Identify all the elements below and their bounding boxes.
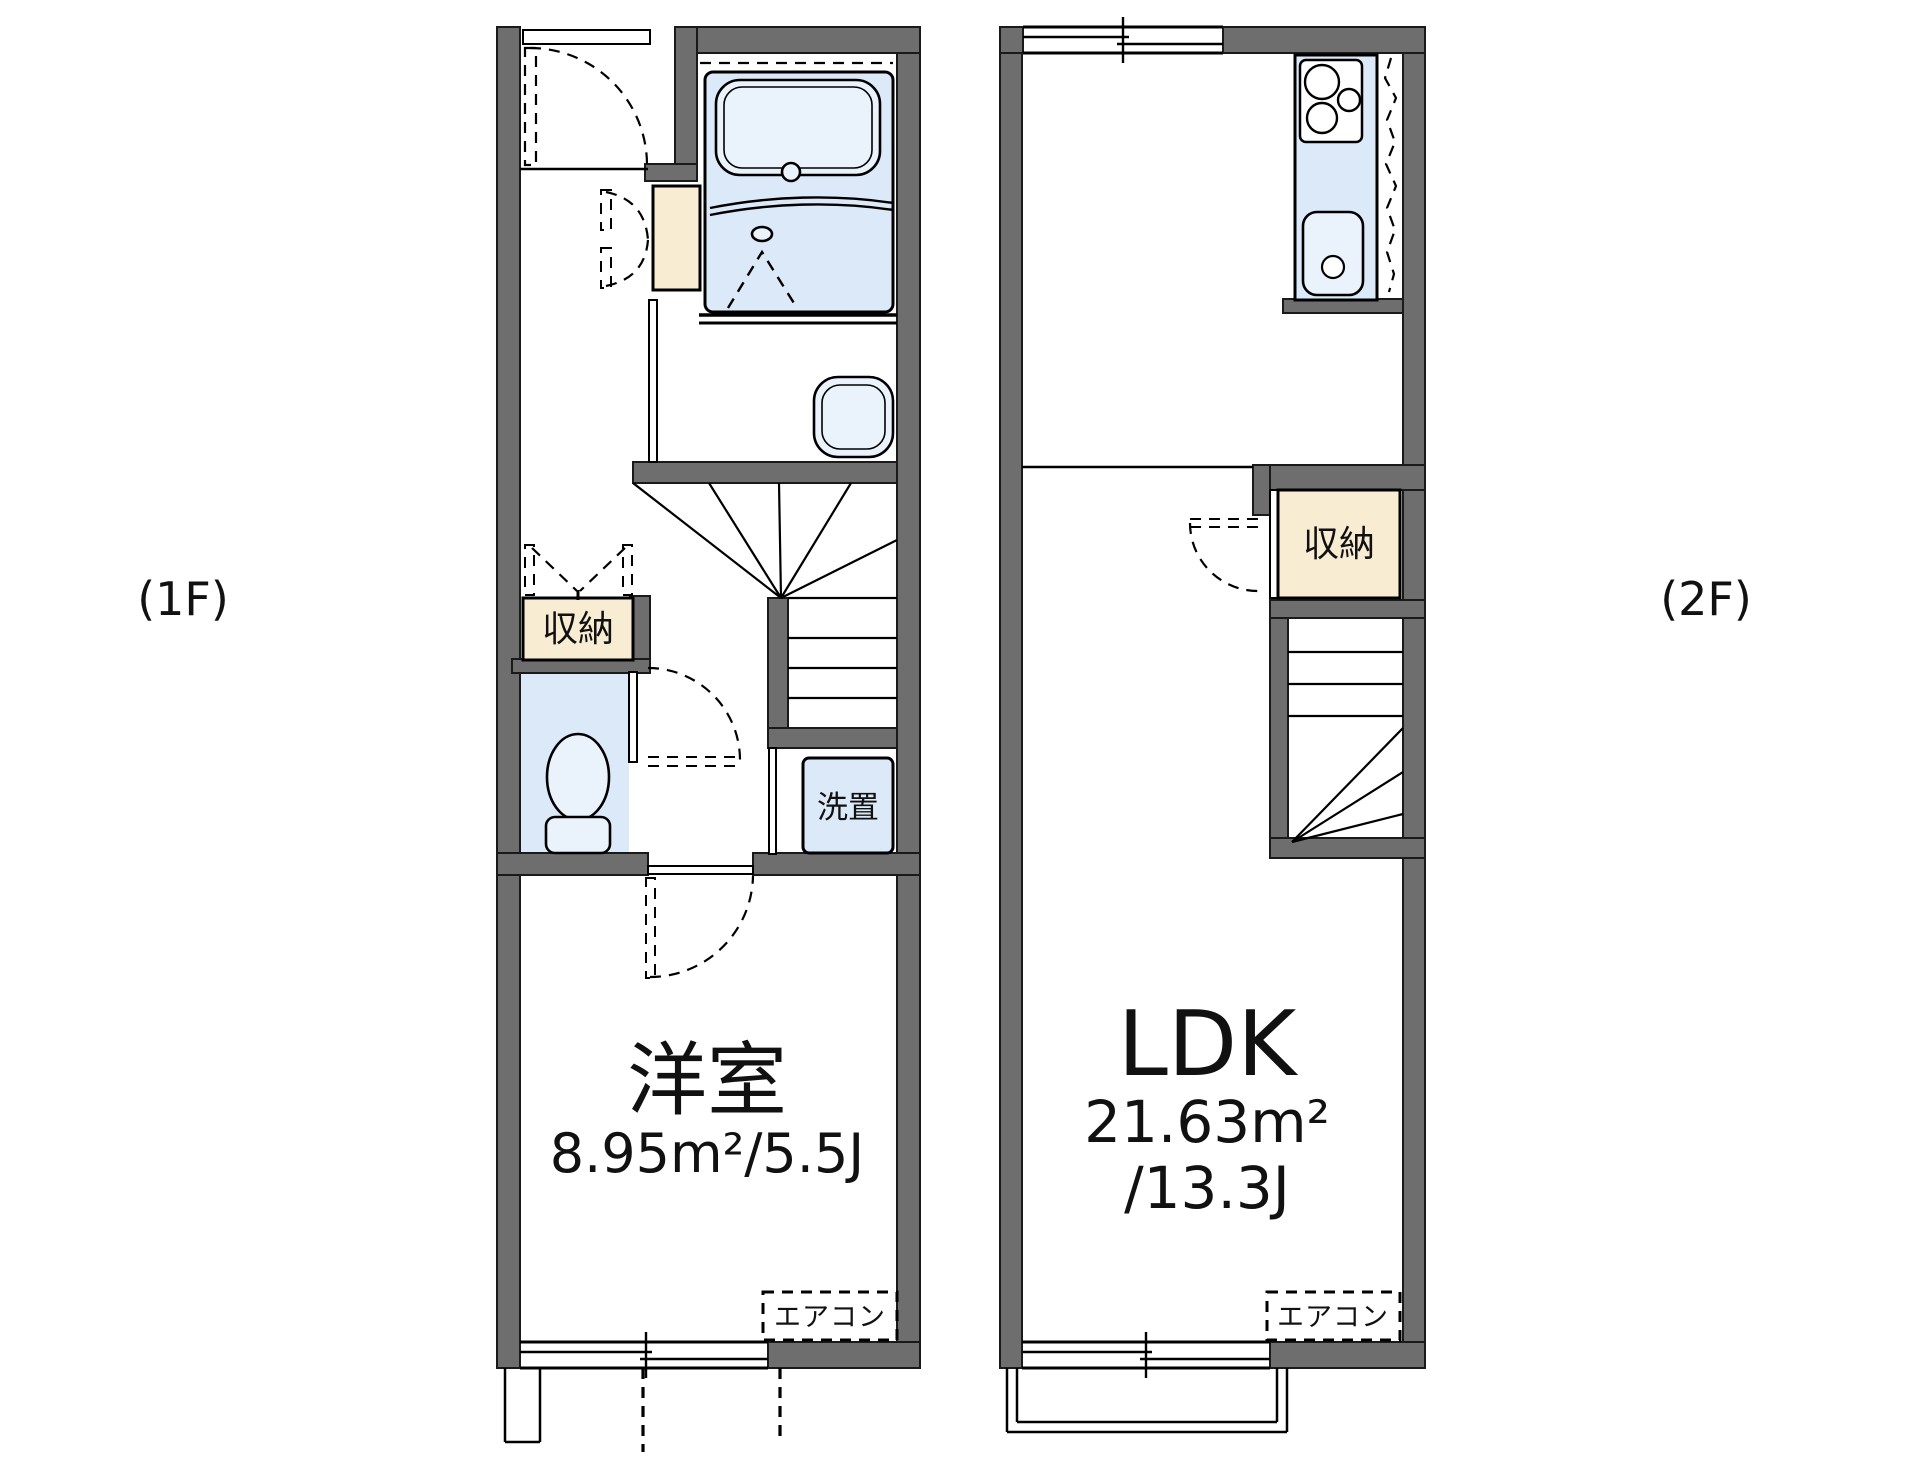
laundry-space: 洗置 <box>803 758 893 853</box>
porch-lines-1f <box>505 1368 780 1452</box>
window-2f-south <box>1022 1332 1270 1378</box>
stairs-2f <box>1288 652 1403 842</box>
floor-plan-2f: 収納 LDK 21.63m² /13.3J エアコン <box>1000 17 1425 1432</box>
partitions-1f <box>629 300 776 874</box>
kitchen-unit <box>1295 55 1377 300</box>
closet-1f-label: 収納 <box>542 609 614 650</box>
laundry-label: 洗置 <box>817 790 879 826</box>
toilet-fixture <box>546 734 610 853</box>
bath-unit <box>699 63 897 323</box>
bedroom-area: 8.95m²/5.5J <box>550 1122 864 1185</box>
bedroom-name: 洋室 <box>627 1034 787 1127</box>
aircon-2f: エアコン <box>1267 1292 1400 1340</box>
floor-1f-label: (1F) <box>137 572 229 626</box>
floorplan-canvas: 収納 <box>0 0 1920 1459</box>
ldk-area-sqm: 21.63m² <box>1084 1088 1330 1156</box>
counter-strip <box>653 186 700 290</box>
bathtub <box>716 80 880 181</box>
kitchen-sink <box>1303 212 1363 295</box>
fridge-space <box>1385 58 1396 292</box>
closet-1f-bifold-doors <box>525 545 632 600</box>
bath-faucet <box>782 163 800 181</box>
aircon-2f-label: エアコン <box>1277 1302 1389 1333</box>
floor-2f-label: (2F) <box>1660 572 1752 626</box>
stairs-1f <box>633 483 897 698</box>
bath-drain <box>752 227 772 241</box>
toilet-door <box>648 668 743 766</box>
window-2f-north <box>1023 17 1223 63</box>
ldk-area-jo: /13.3J <box>1124 1154 1290 1222</box>
aircon-1f-label: エアコン <box>774 1302 886 1333</box>
closet-2f: 収納 <box>1190 490 1400 598</box>
kitchen-stove <box>1300 60 1362 142</box>
closet-2f-label: 収納 <box>1303 524 1375 565</box>
washroom-double-doors <box>601 190 648 288</box>
bedroom-door <box>646 876 753 978</box>
closet-1f: 収納 <box>523 545 633 660</box>
ldk-name: LDK <box>1118 992 1298 1097</box>
entry-door <box>520 30 650 169</box>
washbasin <box>814 377 893 457</box>
closet-2f-door <box>1190 519 1258 591</box>
floorplan-drawing: 収納 <box>0 0 1920 1459</box>
aircon-1f: エアコン <box>763 1292 897 1340</box>
floor-plan-1f: 収納 <box>497 27 920 1452</box>
